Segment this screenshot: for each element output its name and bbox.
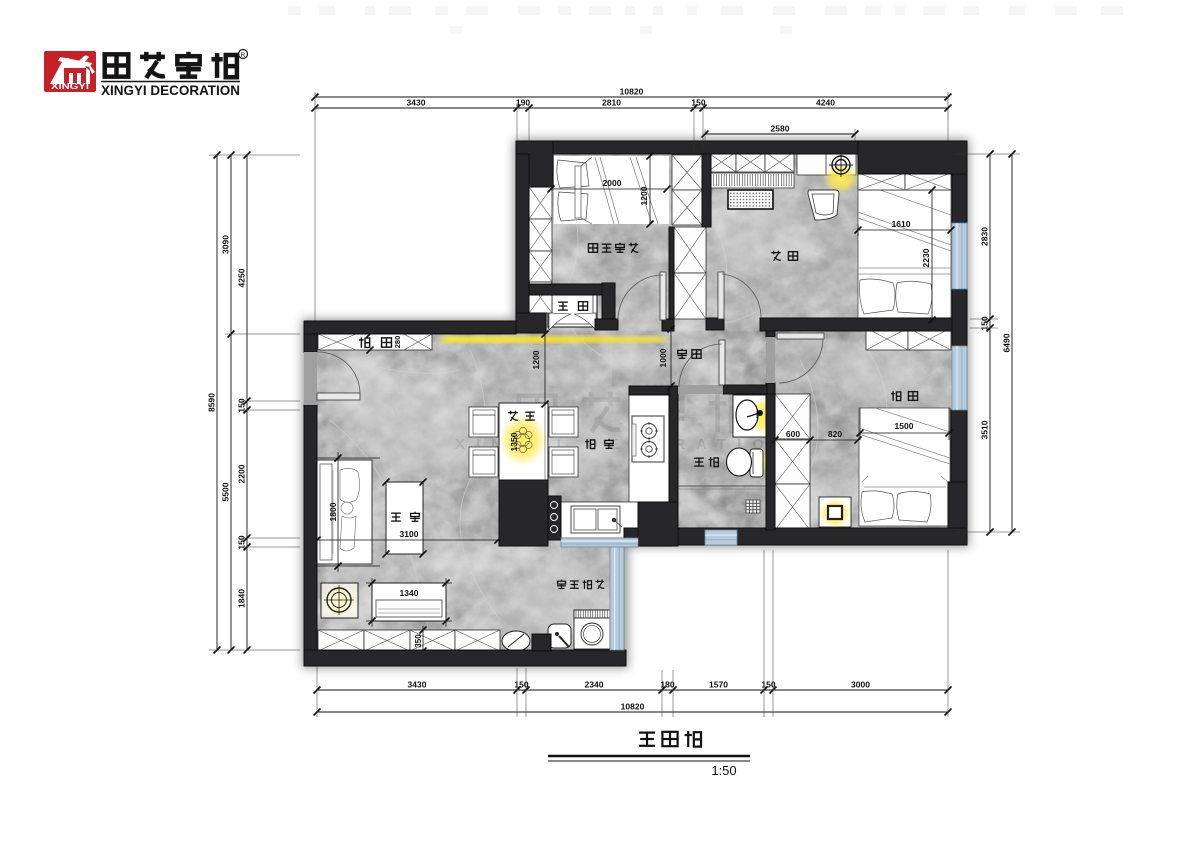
svg-text:150: 150: [980, 316, 990, 330]
svg-text:1610: 1610: [892, 219, 911, 229]
svg-text:2000: 2000: [603, 178, 622, 188]
svg-text:150: 150: [514, 680, 528, 690]
svg-text:2580: 2580: [771, 124, 790, 134]
svg-text:4240: 4240: [816, 98, 835, 108]
svg-text:1:50: 1:50: [711, 763, 736, 778]
svg-text:820: 820: [828, 429, 842, 439]
svg-text:1800: 1800: [328, 502, 338, 521]
svg-text:1200: 1200: [531, 350, 541, 369]
svg-text:6490: 6490: [1002, 333, 1012, 352]
svg-text:2200: 2200: [237, 464, 247, 483]
svg-text:3090: 3090: [221, 235, 231, 254]
svg-text:3100: 3100: [400, 529, 419, 539]
svg-text:3000: 3000: [851, 680, 870, 690]
svg-text:150: 150: [237, 535, 247, 549]
svg-text:150: 150: [237, 398, 247, 412]
svg-text:150: 150: [691, 98, 705, 108]
svg-text:10820: 10820: [621, 702, 645, 712]
svg-text:600: 600: [786, 429, 800, 439]
svg-text:2340: 2340: [585, 680, 604, 690]
svg-text:3510: 3510: [980, 420, 990, 439]
svg-text:1840: 1840: [237, 589, 247, 608]
svg-text:190: 190: [516, 98, 530, 108]
svg-text:1000: 1000: [658, 348, 668, 367]
svg-text:4250: 4250: [237, 268, 247, 287]
svg-text:8590: 8590: [207, 393, 217, 412]
svg-text:150: 150: [761, 680, 775, 690]
svg-text:1350: 1350: [509, 432, 519, 451]
svg-text:XINGYI: XINGYI: [51, 82, 89, 91]
svg-text:280: 280: [393, 336, 402, 349]
svg-text:R: R: [241, 52, 246, 59]
svg-text:5500: 5500: [221, 482, 231, 501]
svg-text:10820: 10820: [620, 87, 644, 97]
svg-text:2230: 2230: [921, 248, 931, 267]
svg-text:2830: 2830: [980, 227, 990, 246]
svg-text:1500: 1500: [895, 421, 914, 431]
svg-text:180: 180: [660, 680, 674, 690]
svg-text:1570: 1570: [709, 680, 728, 690]
svg-text:XINGYI DECORATION: XINGYI DECORATION: [101, 82, 240, 98]
svg-text:350: 350: [414, 634, 423, 648]
svg-text:1340: 1340: [400, 588, 419, 598]
svg-text:3430: 3430: [408, 680, 427, 690]
svg-text:2810: 2810: [602, 98, 621, 108]
svg-text:3430: 3430: [407, 98, 426, 108]
svg-text:1200: 1200: [639, 186, 649, 205]
